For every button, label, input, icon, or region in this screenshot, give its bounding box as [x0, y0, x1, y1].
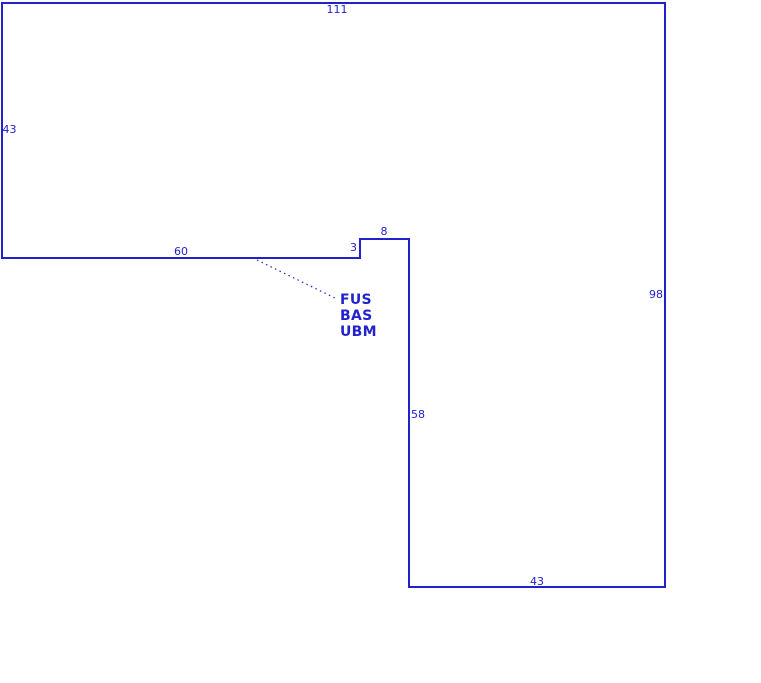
- shape-outline: [2, 3, 665, 587]
- dim-label-bottom-width: 43: [530, 575, 544, 588]
- annotation-line-3: UBM: [340, 324, 377, 340]
- leader-line: [257, 260, 335, 298]
- dim-label-lower-left-width: 60: [174, 245, 188, 258]
- drawing-svg: 111 43 60 3 8 98 58 43 FUS BAS UBM: [0, 0, 761, 683]
- annotation-line-2: BAS: [340, 308, 373, 324]
- dim-label-inner-height: 58: [411, 408, 425, 421]
- dim-label-top-width: 111: [327, 3, 348, 16]
- drawing-canvas: 111 43 60 3 8 98 58 43 FUS BAS UBM: [0, 0, 761, 683]
- dim-label-step-height: 3: [350, 241, 357, 254]
- dim-label-step-width: 8: [381, 225, 388, 238]
- dim-label-right-height: 98: [649, 288, 663, 301]
- annotation-line-1: FUS: [340, 292, 372, 308]
- dim-label-left-height: 43: [3, 123, 17, 136]
